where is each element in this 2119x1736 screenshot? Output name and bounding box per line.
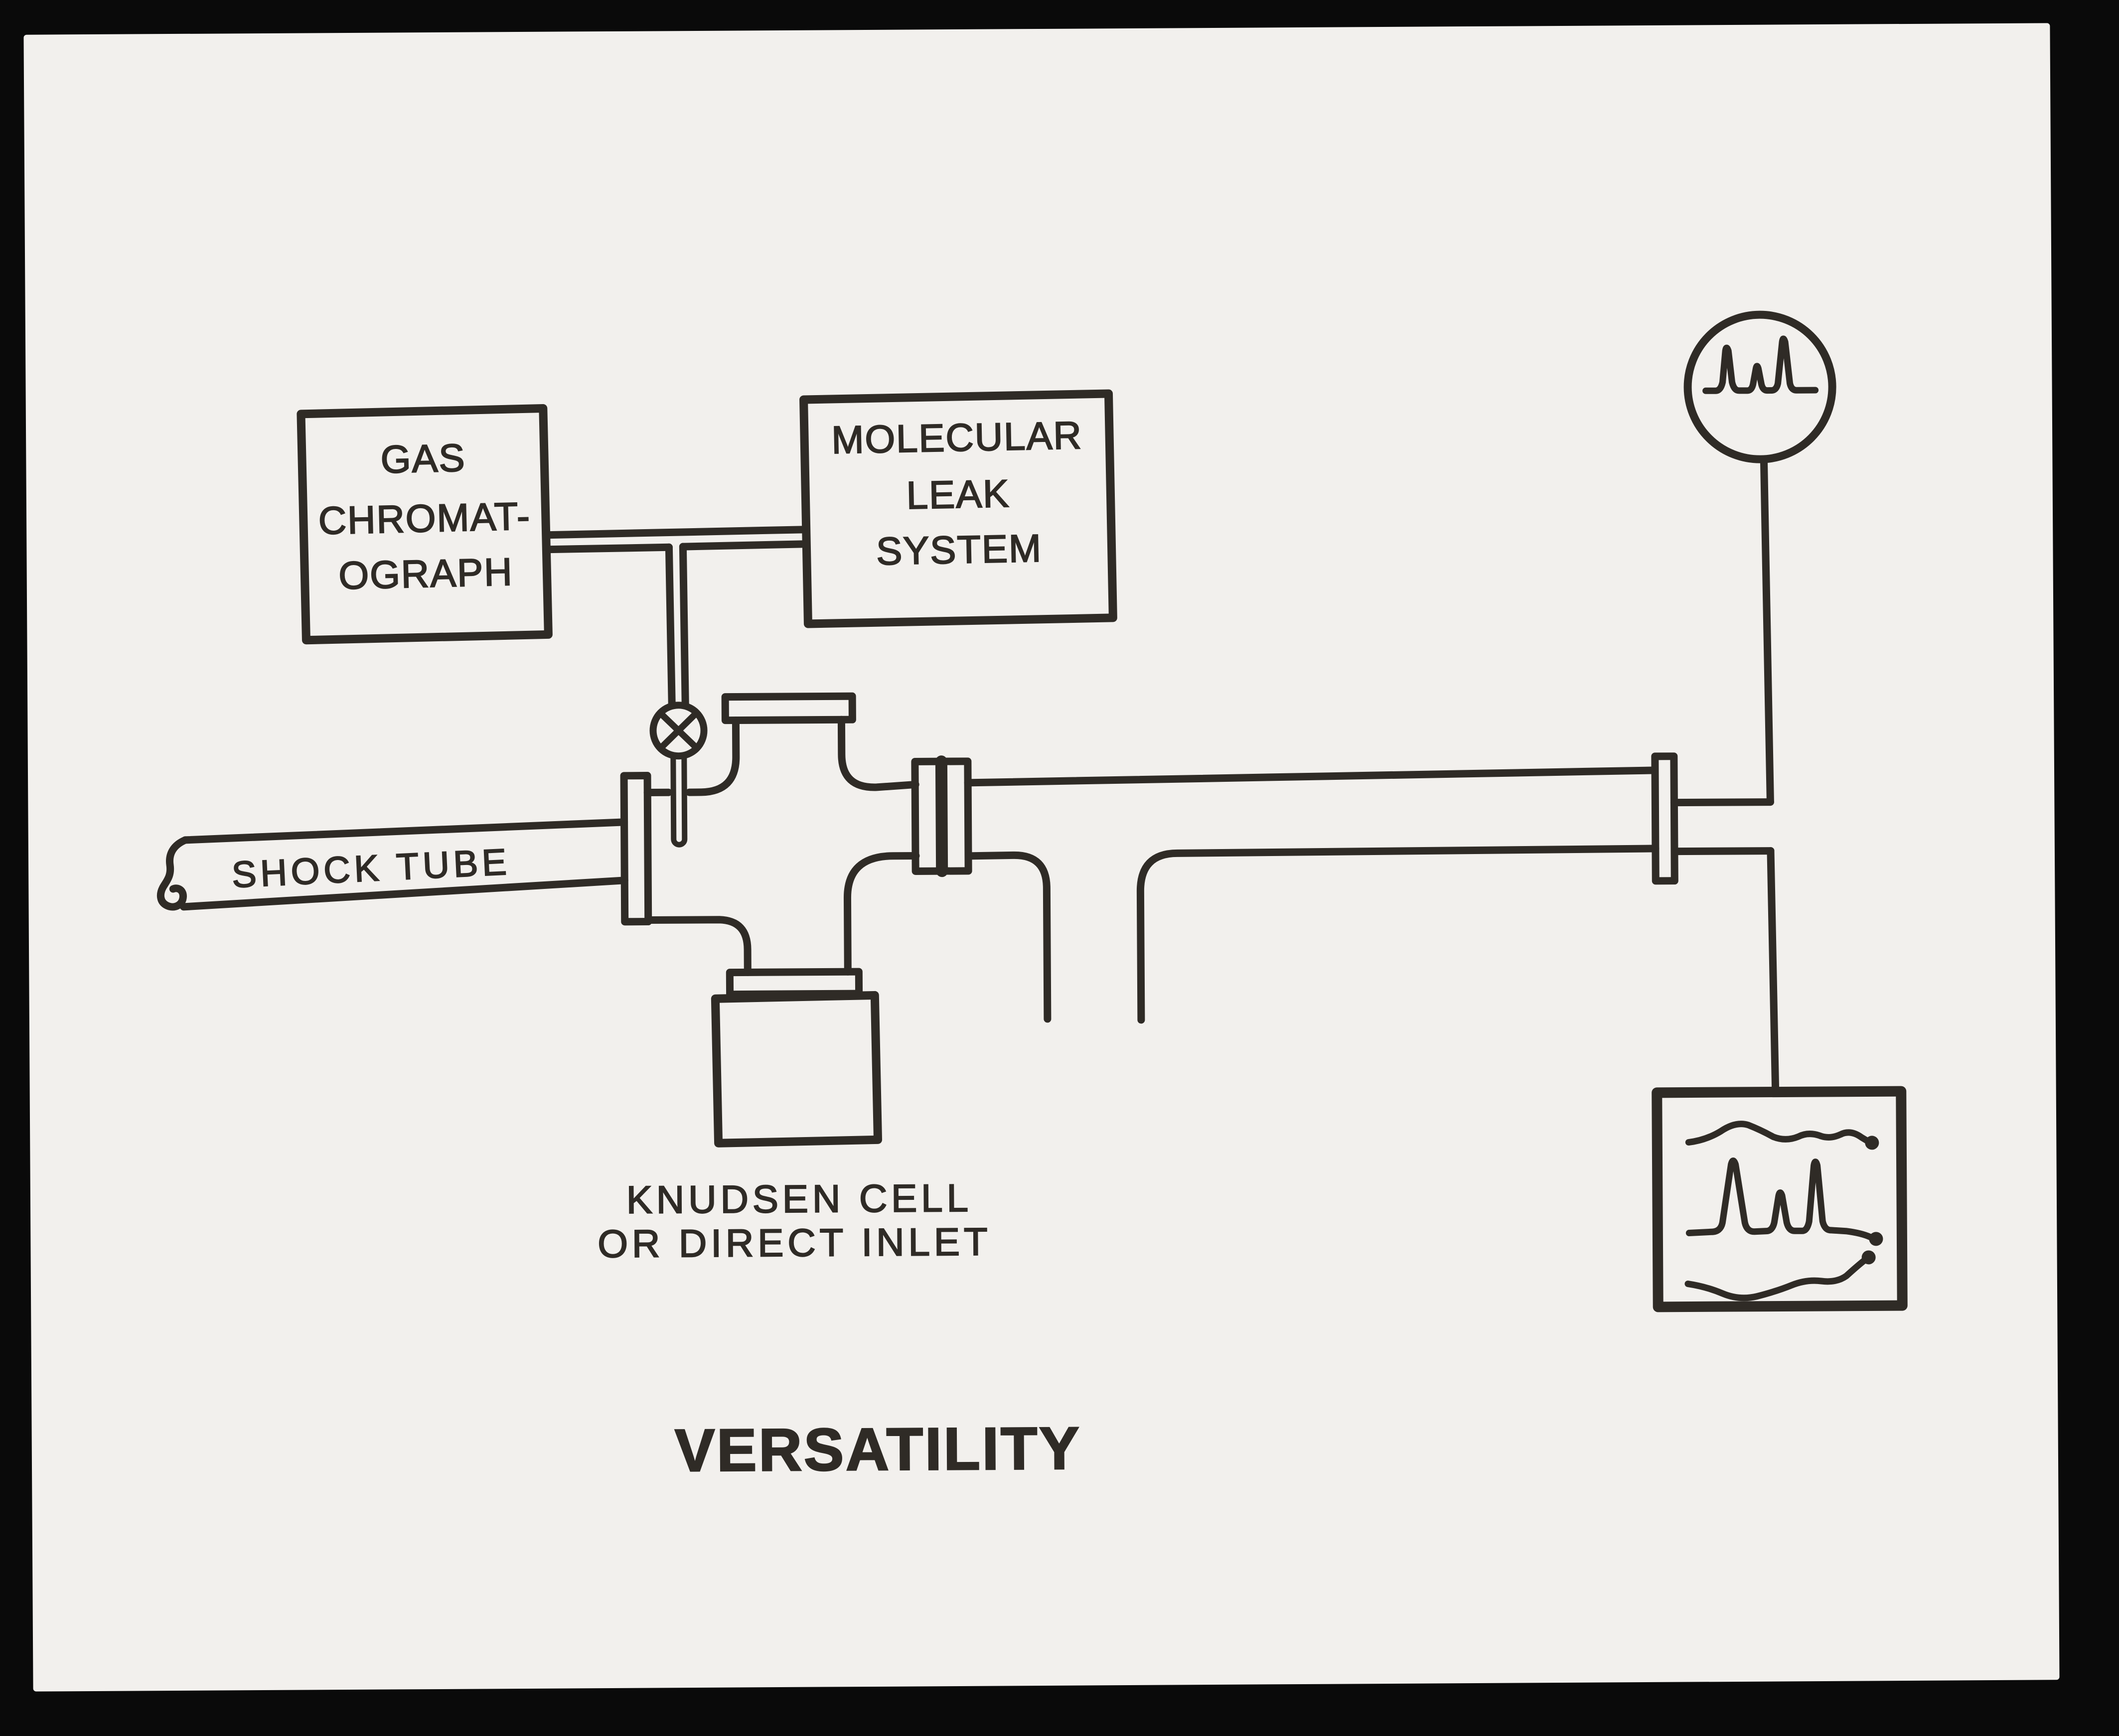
recorder-lead <box>1771 851 1776 1092</box>
photo-of-diagram: GAS CHROMAT- OGRAPH MOLECULAR LEAK SYSTE… <box>0 0 2119 1736</box>
caption-versatility: VERSATILITY <box>675 1415 1081 1484</box>
gc-line3: OGRAPH <box>338 550 513 597</box>
gc-line2: CHROMAT- <box>318 494 531 543</box>
card-group: GAS CHROMAT- OGRAPH MOLECULAR LEAK SYSTE… <box>23 23 2059 1691</box>
gc-line1: GAS <box>380 435 466 481</box>
knudsen-label-line2: OR DIRECT INLET <box>598 1220 992 1266</box>
ml-line1: MOLECULAR <box>831 413 1083 462</box>
knudsen-label-line1: KNUDSEN CELL <box>626 1176 973 1222</box>
diagram-svg: GAS CHROMAT- OGRAPH MOLECULAR LEAK SYSTE… <box>0 0 2119 1736</box>
ml-line2: LEAK <box>906 471 1010 517</box>
ml-line3: SYSTEM <box>876 526 1042 574</box>
